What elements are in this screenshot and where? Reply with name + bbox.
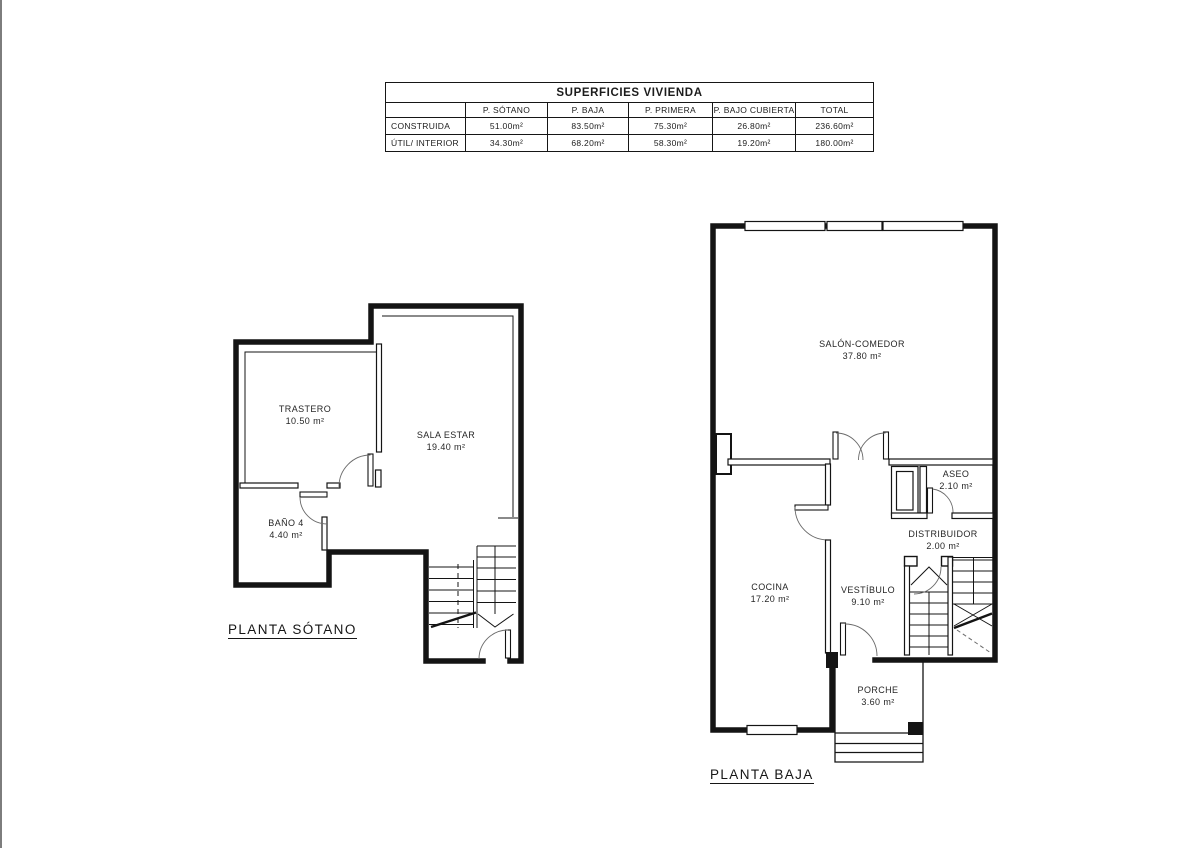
room-label-distribuidor: DISTRIBUIDOR 2.00 m²: [908, 529, 977, 552]
table-row: ÚTIL/ INTERIOR 34.30m² 68.20m² 58.30m² 1…: [386, 135, 874, 152]
aseo-bottom-wall-right: [952, 513, 993, 519]
sotano-exit-door-arc: [479, 630, 508, 659]
porche-door-leaf: [841, 623, 846, 655]
room-name: COCINA: [751, 582, 790, 594]
baja-stairs-dashed: [957, 630, 991, 653]
table-header-bajo-cubierta: P. BAJO CUBIERTA: [713, 103, 796, 118]
table-header-blank: [386, 103, 466, 118]
room-name: VESTÍBULO: [841, 585, 895, 597]
room-area: 17.20 m²: [751, 594, 790, 606]
sotano-plan: [236, 306, 521, 661]
plan-title-sotano: PLANTA SÓTANO: [228, 622, 357, 639]
cell: 51.00m²: [466, 118, 548, 135]
salon-divider-left: [728, 459, 830, 465]
salon-door-leaf-right: [884, 432, 889, 459]
porche-pillar: [908, 722, 923, 735]
wall-column: [716, 434, 731, 474]
cocina-door-arc: [795, 507, 828, 540]
stair-mid-divider: [948, 557, 953, 655]
room-area: 19.40 m²: [417, 442, 475, 454]
room-label-cocina: COCINA 17.20 m²: [751, 582, 790, 605]
cell: 83.50m²: [548, 118, 629, 135]
cell: 26.80m²: [713, 118, 796, 135]
stair-left-wall: [905, 566, 910, 655]
window: [745, 222, 825, 231]
cell: 58.30m²: [629, 135, 713, 152]
sotano-divider-jamb: [376, 470, 382, 487]
sotano-divider-vertical: [377, 344, 382, 452]
room-name: SALA ESTAR: [417, 430, 475, 442]
room-label-porche: PORCHE 3.60 m²: [858, 685, 899, 708]
shaft-outer: [892, 467, 919, 516]
porche-door-arc: [845, 624, 877, 656]
porche-structure: [835, 662, 923, 762]
bano-right-wall: [322, 517, 327, 550]
floorplan-sheet: SUPERFICIES VIVIENDA P. SÓTANO P. BAJA P…: [0, 0, 1202, 848]
cocina-window: [747, 726, 797, 735]
salon-door-leaf-left: [833, 432, 838, 459]
cocina-divider-upper: [826, 464, 831, 505]
room-area: 10.50 m²: [279, 416, 331, 428]
room-area: 4.40 m²: [268, 530, 303, 542]
room-label-bano4: BAÑO 4 4.40 m²: [268, 518, 303, 541]
window: [827, 222, 882, 231]
aseo-bottom-wall-left: [892, 513, 928, 519]
aseo-door-leaf: [928, 488, 933, 513]
room-area: 2.10 m²: [939, 481, 972, 493]
bano-door-leaf: [300, 492, 327, 497]
room-name: SALÓN-COMEDOR: [819, 339, 905, 351]
cocina-door-leaf: [795, 505, 828, 510]
table-header-primera: P. PRIMERA: [629, 103, 713, 118]
cell: 236.60m²: [796, 118, 874, 135]
stair-door-arc: [914, 567, 941, 594]
shaft-inner: [897, 472, 914, 511]
cell: 19.20m²: [713, 135, 796, 152]
stair-jamb: [905, 557, 918, 567]
baja-stairs-chevron: [911, 567, 947, 585]
room-label-trastero: TRASTERO 10.50 m²: [279, 404, 331, 427]
table-header-total: TOTAL: [796, 103, 874, 118]
wall-corner-piece: [826, 652, 838, 668]
cell: 34.30m²: [466, 135, 548, 152]
table-row: CONSTRUIDA 51.00m² 83.50m² 75.30m² 26.80…: [386, 118, 874, 135]
sotano-stairs: [429, 546, 516, 628]
row-label-construida: CONSTRUIDA: [386, 118, 466, 135]
trastero-door-leaf: [368, 454, 373, 486]
aseo-left-wall: [920, 467, 927, 514]
room-name: PORCHE: [858, 685, 899, 697]
porche-steps: [835, 733, 923, 762]
trastero-door-arc: [339, 455, 371, 487]
room-name: BAÑO 4: [268, 518, 303, 530]
room-area: 9.10 m²: [841, 597, 895, 609]
surfaces-table: SUPERFICIES VIVIENDA P. SÓTANO P. BAJA P…: [385, 82, 874, 152]
room-name: ASEO: [939, 469, 972, 481]
row-label-util-interior: ÚTIL/ INTERIOR: [386, 135, 466, 152]
cocina-divider-lower: [826, 540, 831, 653]
table-title: SUPERFICIES VIVIENDA: [386, 83, 874, 103]
room-name: TRASTERO: [279, 404, 331, 416]
sotano-exit-door-leaf: [506, 630, 511, 658]
aseo-door-arc: [933, 489, 954, 513]
salon-divider-right: [889, 459, 993, 465]
room-area: 3.60 m²: [858, 697, 899, 709]
sotano-divider-horizontal-a: [240, 483, 298, 488]
baja-stairs: [905, 557, 994, 656]
room-name: DISTRIBUIDOR: [908, 529, 977, 541]
salon-door-arcs: [836, 433, 886, 460]
plan-title-baja: PLANTA BAJA: [710, 767, 814, 784]
sotano-divider-horizontal-b: [327, 483, 340, 488]
room-area: 2.00 m²: [908, 541, 977, 553]
room-label-sala-estar: SALA ESTAR 19.40 m²: [417, 430, 475, 453]
baja-top-windows: [745, 222, 963, 231]
room-label-salon-comedor: SALÓN-COMEDOR 37.80 m²: [819, 339, 905, 362]
sotano-stairs-chevron: [478, 614, 514, 627]
cell: 68.20m²: [548, 135, 629, 152]
room-area: 37.80 m²: [819, 351, 905, 363]
table-header-sotano: P. SÓTANO: [466, 103, 548, 118]
window: [883, 222, 963, 231]
room-label-aseo: ASEO 2.10 m²: [939, 469, 972, 492]
cell: 75.30m²: [629, 118, 713, 135]
table-header-baja: P. BAJA: [548, 103, 629, 118]
baja-stairs-cut-line: [954, 614, 992, 629]
cell: 180.00m²: [796, 135, 874, 152]
room-label-vestibulo: VESTÍBULO 9.10 m²: [841, 585, 895, 608]
